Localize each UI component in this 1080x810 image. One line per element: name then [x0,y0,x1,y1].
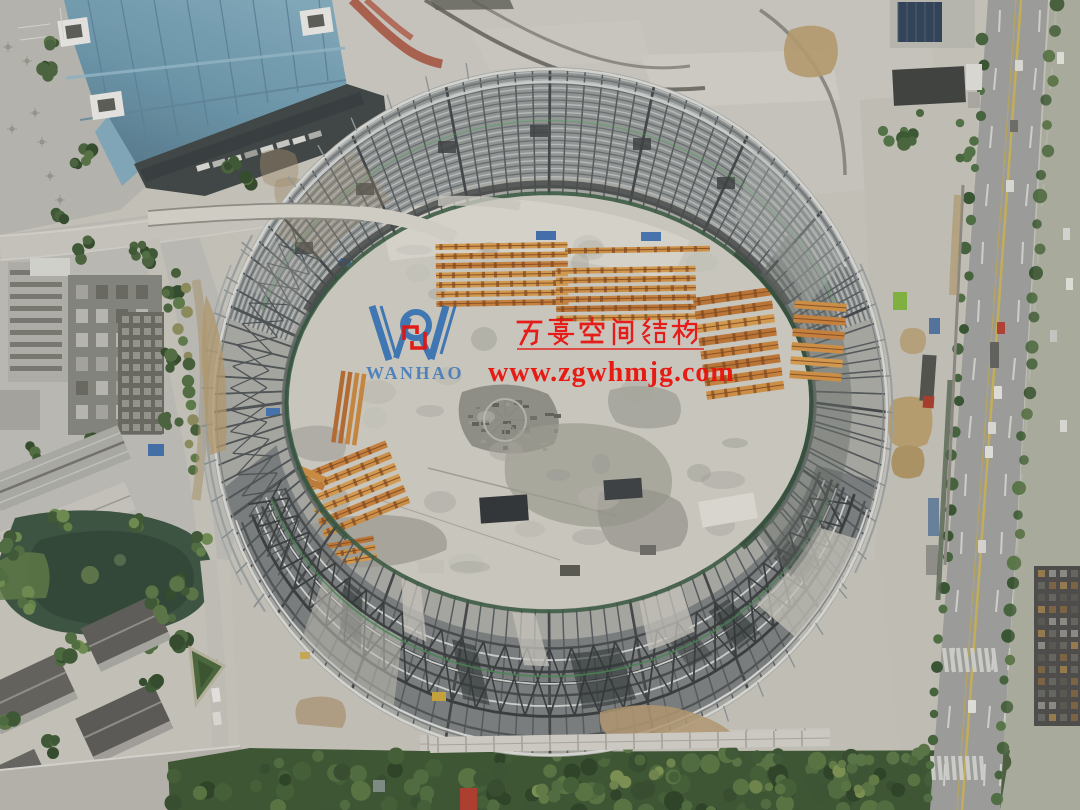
svg-text:WANHAO: WANHAO [366,363,464,383]
svg-text:www.zgwhmjg.com: www.zgwhmjg.com [488,357,735,388]
